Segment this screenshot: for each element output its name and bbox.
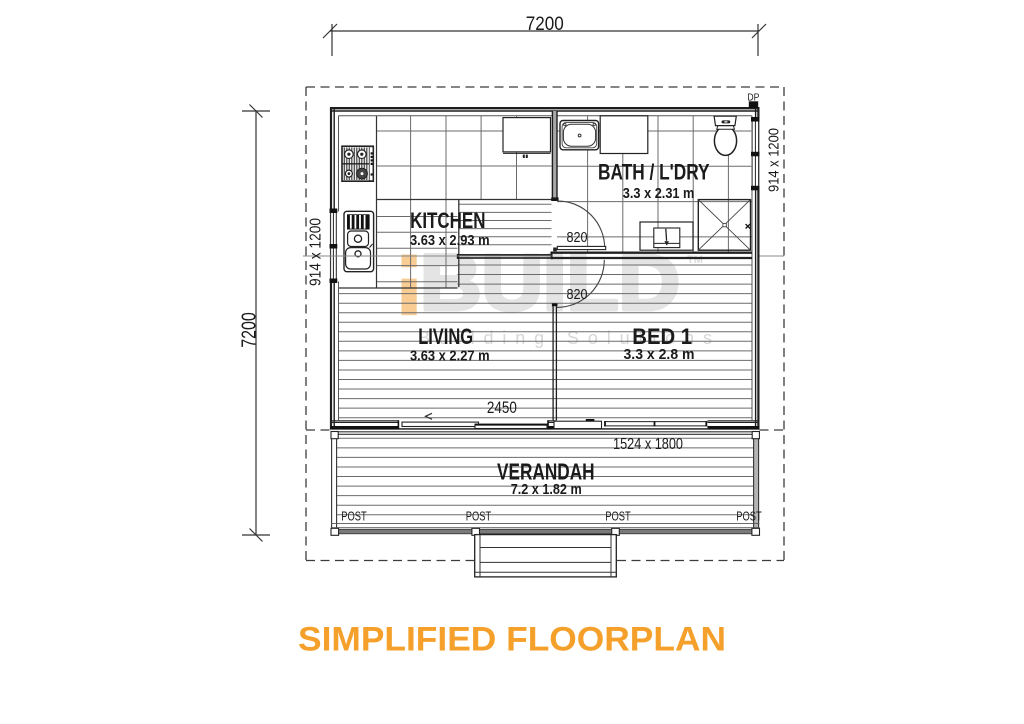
svg-text:POST: POST [605, 510, 631, 524]
svg-text:TM: TM [687, 254, 703, 266]
svg-text:7.2 x 1.82 m: 7.2 x 1.82 m [511, 481, 582, 498]
svg-text:POST: POST [341, 510, 367, 524]
svg-text:2450: 2450 [487, 398, 517, 417]
svg-text:POST: POST [466, 510, 492, 524]
svg-text:820: 820 [567, 287, 588, 303]
svg-text:3.3 x 2.31 m: 3.3 x 2.31 m [623, 185, 695, 202]
svg-text:DP: DP [747, 92, 759, 104]
svg-text:3.63 x 2.93 m: 3.63 x 2.93 m [410, 232, 490, 249]
svg-text:1524 x 1800: 1524 x 1800 [613, 436, 683, 453]
svg-text:POST: POST [736, 510, 762, 524]
svg-text:3.63 x 2.27 m: 3.63 x 2.27 m [410, 348, 490, 365]
svg-text:KITCHEN: KITCHEN [410, 208, 485, 233]
svg-text:7200: 7200 [239, 312, 261, 348]
svg-text:3.3 x 2.8 m: 3.3 x 2.8 m [624, 346, 695, 363]
svg-text:914 x 1200: 914 x 1200 [308, 218, 325, 286]
svg-text:BATH / L'DRY: BATH / L'DRY [598, 160, 710, 185]
svg-text:SIMPLIFIED FLOORPLAN: SIMPLIFIED FLOORPLAN [298, 621, 726, 659]
svg-text:914 x 1200: 914 x 1200 [766, 128, 783, 192]
svg-text:LIVING: LIVING [418, 324, 473, 349]
svg-text:7200: 7200 [526, 13, 564, 35]
svg-text:820: 820 [567, 230, 588, 246]
